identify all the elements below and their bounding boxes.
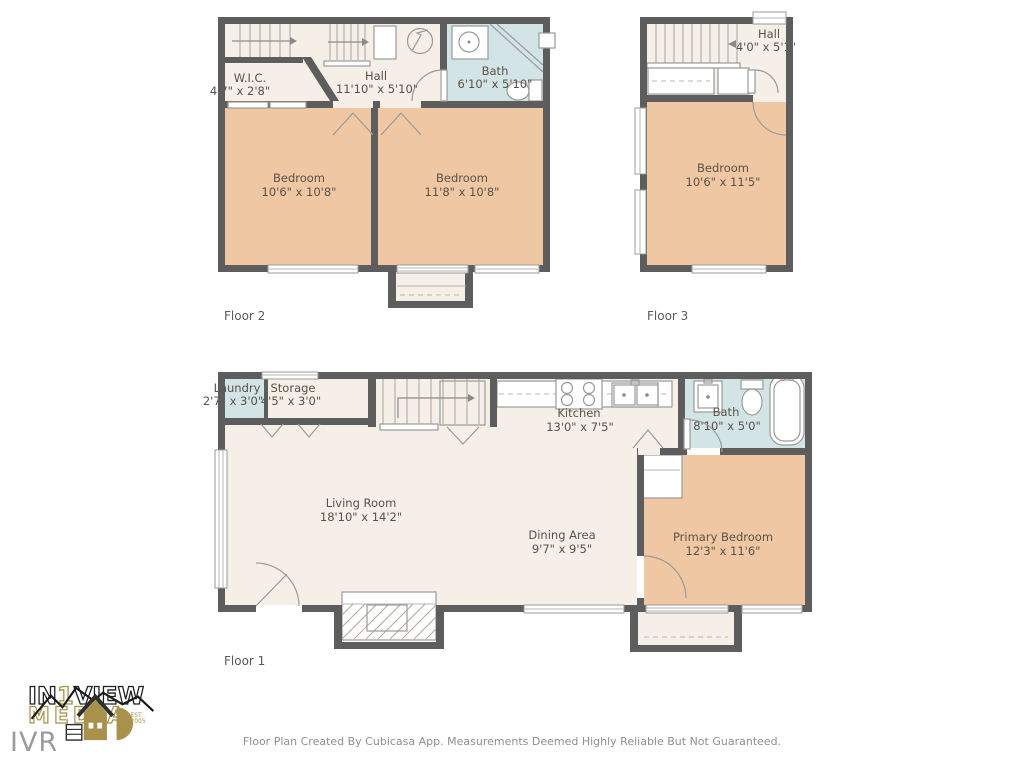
room-dims-bath-f2: 6'10" x 5'10" xyxy=(458,77,533,91)
room-label-living-f1: Living Room xyxy=(326,496,397,510)
room-dims-primary-f1: 12'3" x 11'6" xyxy=(686,544,761,558)
room-label-dining-f1: Dining Area xyxy=(528,528,595,542)
floor1-label: Floor 1 xyxy=(224,654,265,668)
room-dims-bedroom-left-f2: 10'6" x 10'8" xyxy=(262,185,337,199)
room-label-primary-f1: Primary Bedroom xyxy=(673,530,773,544)
floor2-plan: W.I.C. 4'7" x 2'8" Hall 11'10" x 5'10" B… xyxy=(210,17,555,323)
room-dims-storage-f1: 4'5" x 3'0" xyxy=(261,394,321,408)
bath-sink-f2 xyxy=(452,26,488,59)
room-label-storage-f1: Storage xyxy=(271,381,316,395)
room-label-hall-f3: Hall xyxy=(758,27,780,41)
floor1-plan: Laundry 2'7" x 3'0" Storage 4'5" x 3'0" … xyxy=(203,372,812,668)
fireplace-f1 xyxy=(334,592,444,649)
room-dims-bedroom-right-f2: 11'8" x 10'8" xyxy=(425,185,500,199)
floor3-plan: Hall 4'0" x 5'1" Bedroom 10'6" x 11'5" F… xyxy=(635,12,796,323)
room-dims-hall-f2: 11'10" x 5'10" xyxy=(336,82,418,96)
kitchen-counter-f1 xyxy=(497,379,672,409)
deck-f2 xyxy=(396,272,465,302)
toilet-icon xyxy=(741,380,763,389)
in1view-media-logo: IN1VIEW MEDIA EST. 2005 xyxy=(26,684,146,728)
room-dims-bath-f1: 8'10" x 5'0" xyxy=(693,419,761,433)
room-label-wic-f2: W.I.C. xyxy=(234,71,266,85)
room-label-hall-f2: Hall xyxy=(365,69,387,83)
room-label-kitchen-f1: Kitchen xyxy=(557,406,600,420)
primary-closet-f1 xyxy=(640,455,682,498)
room-dims-dining-f1: 9'7" x 9'5" xyxy=(532,542,592,556)
room-dims-bedroom-f3: 10'6" x 11'5" xyxy=(686,175,761,189)
room-label-bedroom-f3: Bedroom xyxy=(697,161,749,175)
room-dims-kitchen-f1: 13'0" x 7'5" xyxy=(546,420,614,434)
room-dims-living-f1: 18'10" x 14'2" xyxy=(320,510,402,524)
room-label-bath-f1: Bath xyxy=(713,405,740,419)
floor2-label: Floor 2 xyxy=(224,309,265,323)
room-label-bedroom-left-f2: Bedroom xyxy=(273,171,325,185)
room-dims-laundry-f1: 2'7" x 3'0" xyxy=(203,394,263,408)
deck-f1 xyxy=(638,612,734,645)
room-label-bedroom-right-f2: Bedroom xyxy=(436,171,488,185)
floor-plan-canvas: W.I.C. 4'7" x 2'8" Hall 11'10" x 5'10" B… xyxy=(0,0,1024,768)
floor-plan-page: W.I.C. 4'7" x 2'8" Hall 11'10" x 5'10" B… xyxy=(0,0,1024,768)
footer-disclaimer: Floor Plan Created By Cubicasa App. Meas… xyxy=(0,735,1024,748)
room-label-bath-f2: Bath xyxy=(482,64,509,78)
floor3-label: Floor 3 xyxy=(647,309,688,323)
logo-graphic xyxy=(26,684,184,742)
